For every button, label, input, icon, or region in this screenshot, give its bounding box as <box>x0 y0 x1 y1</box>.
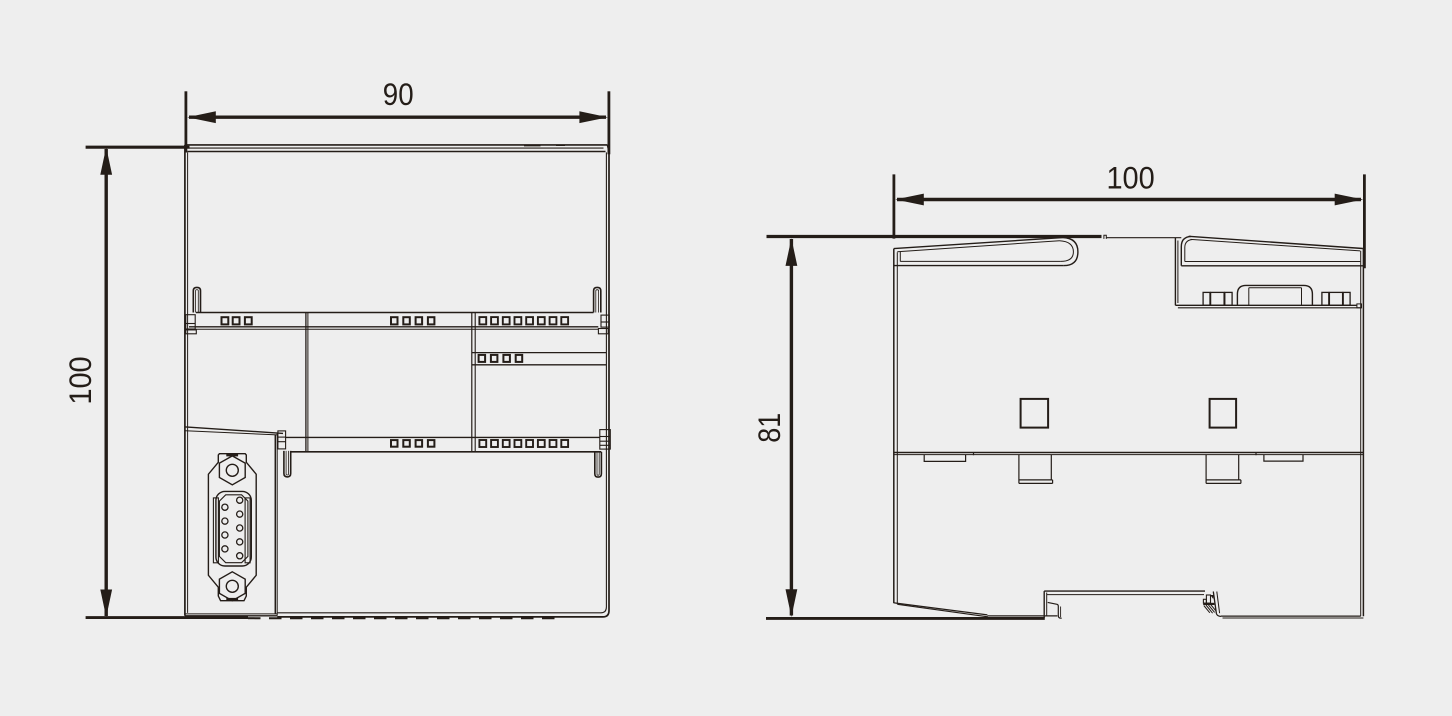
svg-text:100: 100 <box>62 356 98 404</box>
svg-text:90: 90 <box>383 76 414 112</box>
svg-text:100: 100 <box>1106 159 1154 195</box>
svg-text:81: 81 <box>751 413 787 443</box>
